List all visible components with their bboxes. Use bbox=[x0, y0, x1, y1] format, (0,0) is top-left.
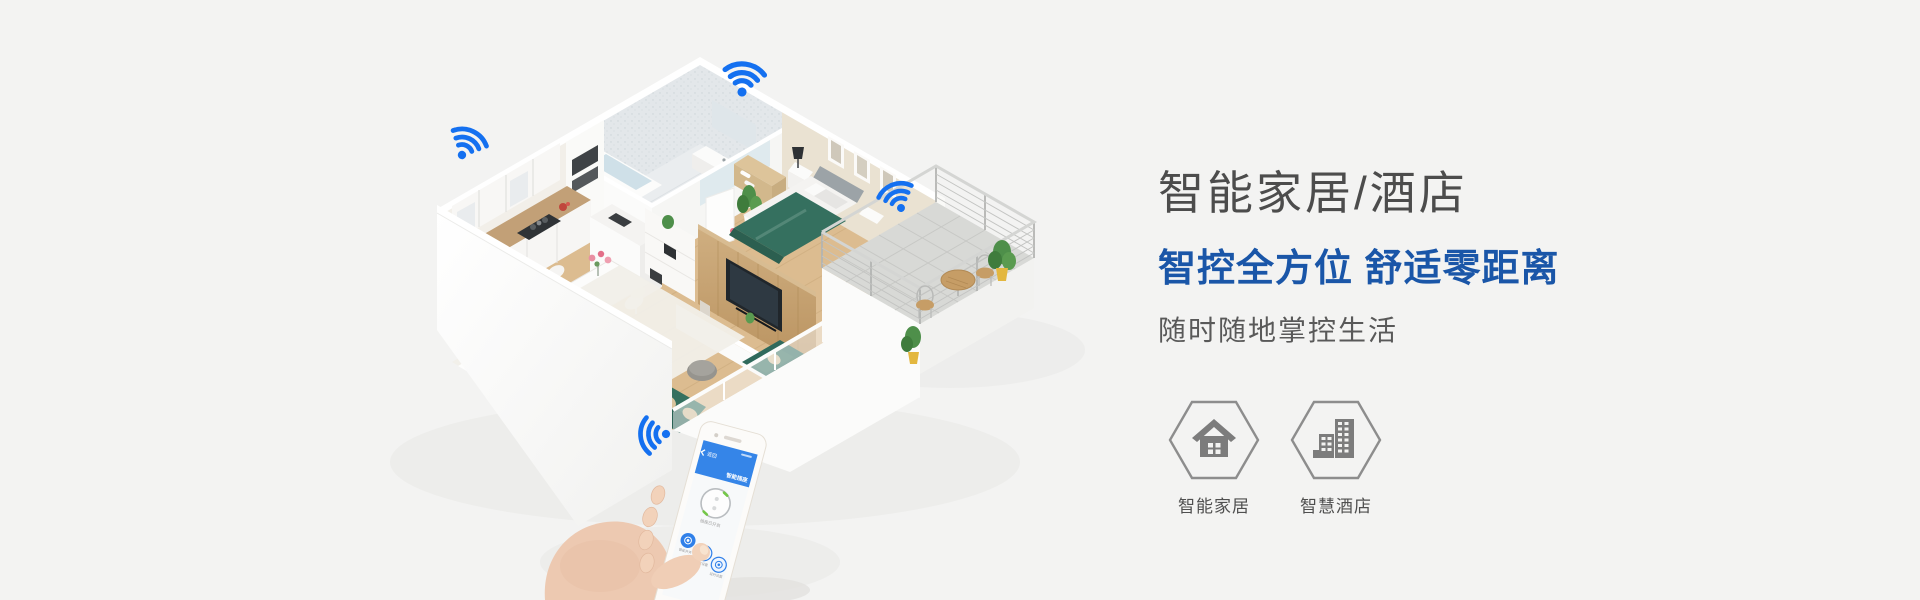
hero-headline: 智控全方位 舒适零距离 bbox=[1158, 237, 1718, 292]
feature-label: 智能家居 bbox=[1178, 492, 1250, 517]
hotel-icon bbox=[1288, 397, 1384, 483]
house-icon bbox=[1166, 397, 1262, 483]
feature-label: 智慧酒店 bbox=[1300, 492, 1372, 517]
hero-text-block: 智能家居/酒店 智控全方位 舒适零距离 随时随地掌控生活 智能家居 bbox=[1158, 166, 1718, 517]
feature-list: 智能家居 bbox=[1158, 397, 1718, 517]
feature-smart-home[interactable]: 智能家居 bbox=[1158, 397, 1270, 517]
hero-banner: 返回 智能插座 插座已开启 智能开关 bbox=[0, 0, 1920, 600]
feature-smart-hotel[interactable]: 智慧酒店 bbox=[1280, 397, 1392, 517]
wifi-icon bbox=[444, 124, 490, 167]
page-title: 智能家居/酒店 bbox=[1158, 166, 1718, 221]
hero-subtitle: 随时随地掌控生活 bbox=[1158, 309, 1718, 349]
smart-home-illustration: 返回 智能插座 插座已开启 智能开关 bbox=[0, 0, 1100, 600]
